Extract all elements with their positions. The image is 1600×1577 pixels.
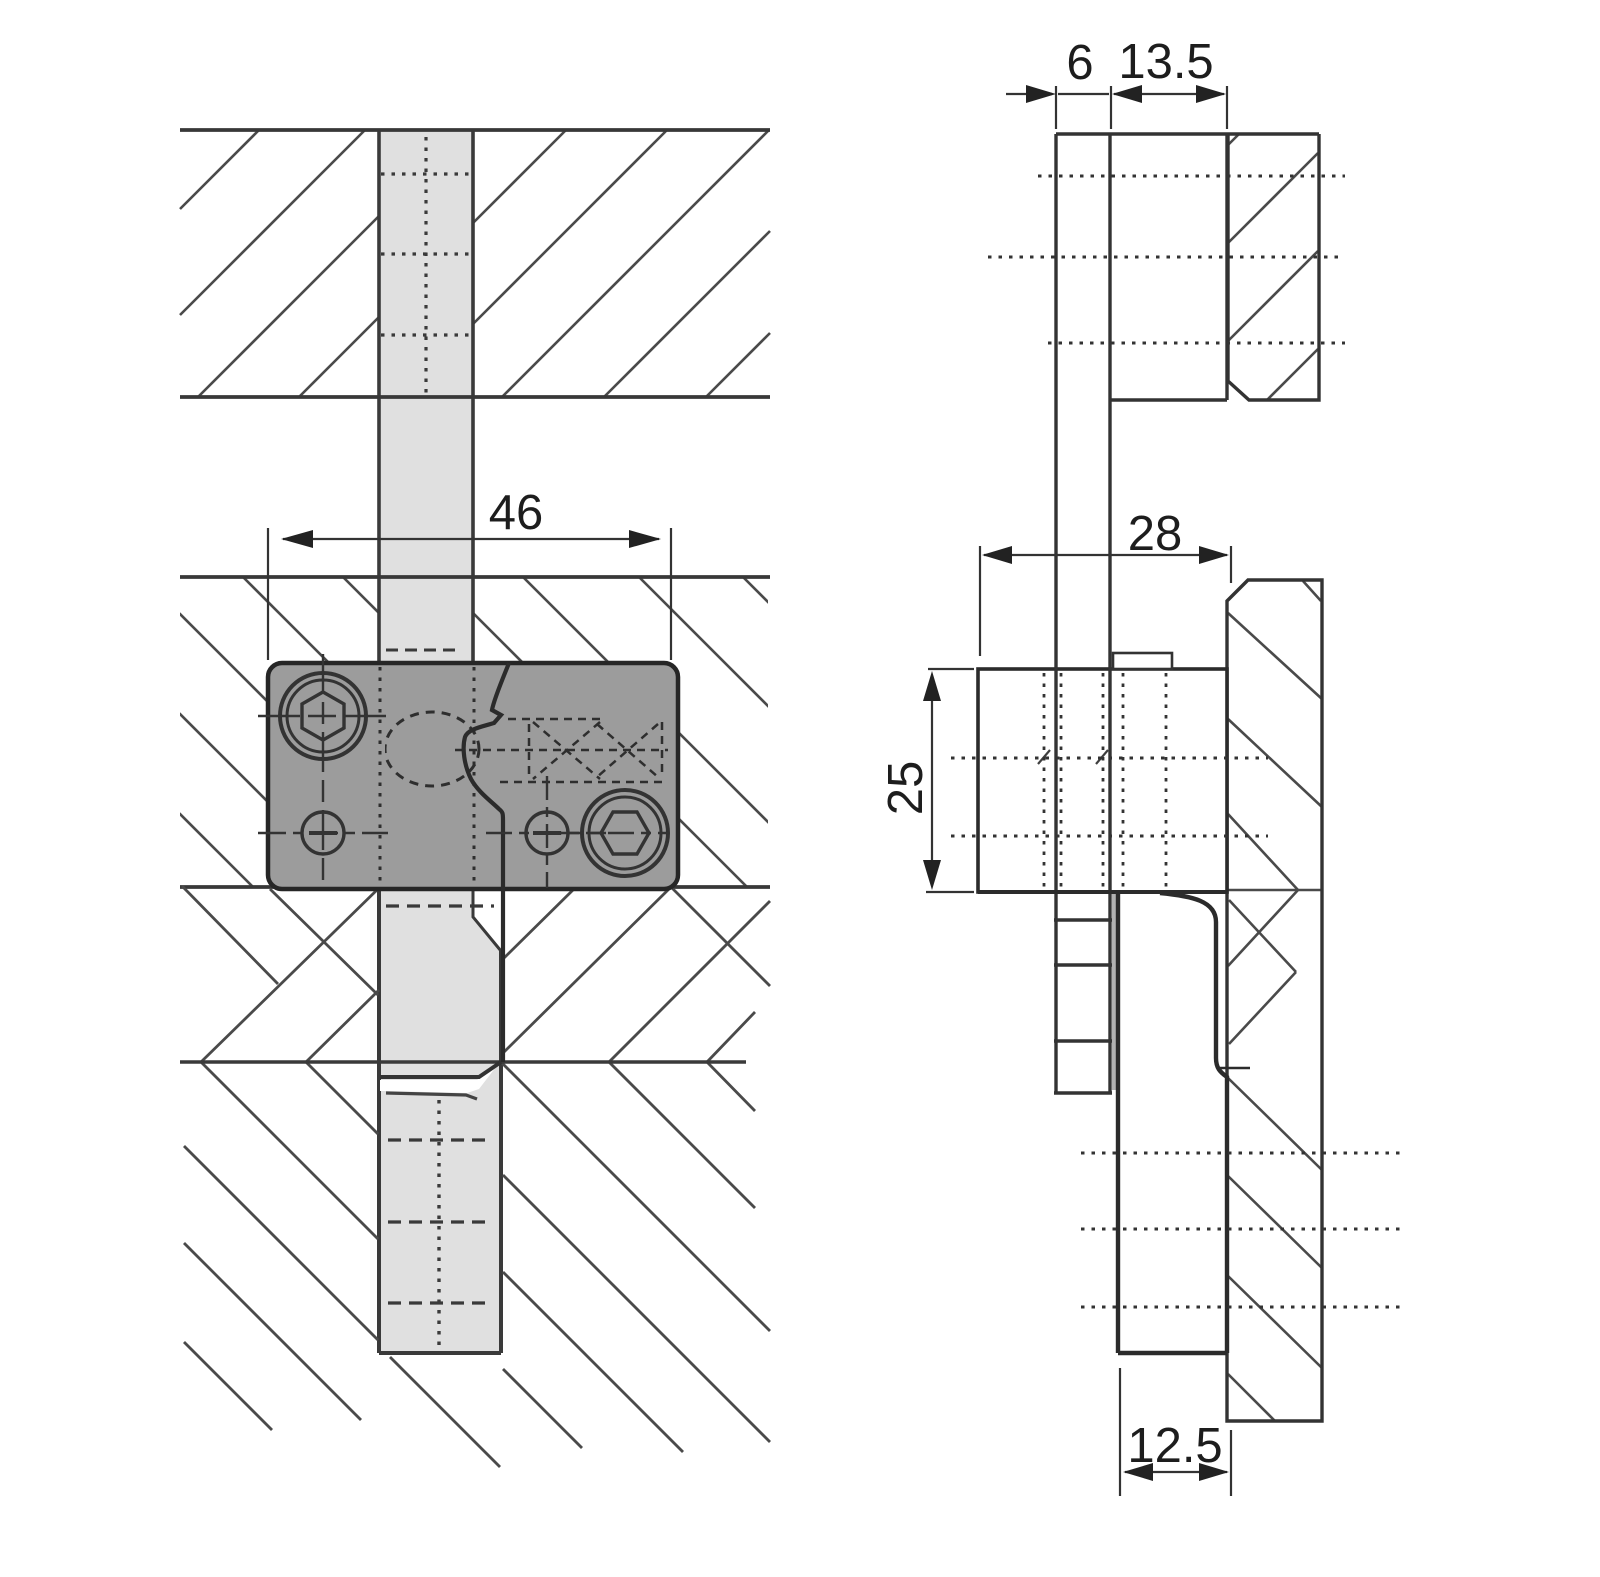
svg-text:46: 46: [489, 486, 544, 540]
svg-text:13.5: 13.5: [1118, 35, 1213, 89]
svg-text:28: 28: [1128, 507, 1183, 561]
svg-text:25: 25: [879, 761, 933, 816]
svg-text:6: 6: [1066, 36, 1093, 90]
svg-text:12.5: 12.5: [1127, 1419, 1222, 1473]
